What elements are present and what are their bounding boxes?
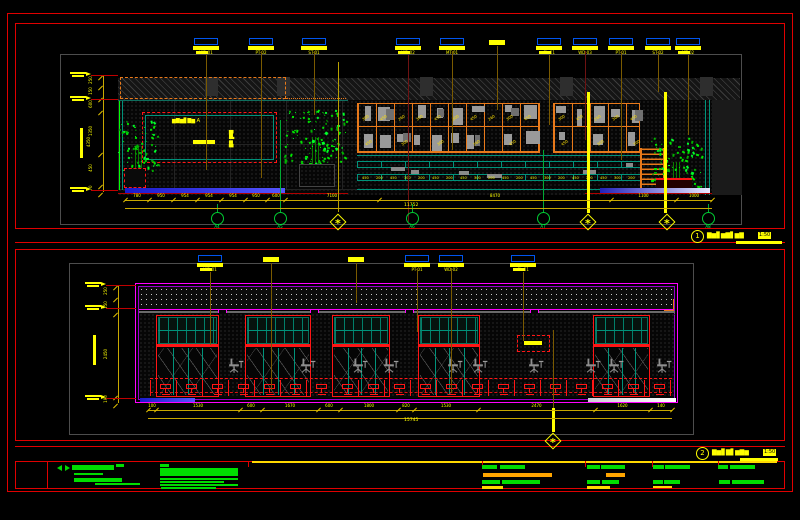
- elevation-flag-leader: [91, 75, 118, 76]
- grid-bubble: A5: [274, 212, 287, 225]
- plant-foliage: [322, 127, 324, 130]
- titleblock-bar: [587, 480, 600, 484]
- drawing2-number-bubble: 2: [696, 447, 709, 460]
- band-number: 450: [460, 177, 467, 181]
- section-leader-bar: [587, 92, 590, 213]
- dim1-total-line: [125, 208, 712, 209]
- window-sill: [419, 344, 479, 347]
- dim2-label: 1530: [434, 404, 458, 408]
- chair-base-red: [344, 394, 352, 395]
- elevation-flag-bar: [85, 282, 101, 284]
- wall-edge-line: [122, 100, 123, 190]
- band-number: 450: [502, 177, 509, 181]
- shelf-item: [472, 106, 484, 113]
- display-band: [357, 155, 640, 190]
- plant-foliage: [330, 128, 332, 131]
- titleblock-bar: [653, 465, 664, 469]
- dim2-label: 2470: [525, 404, 549, 408]
- dim1-label: 1000: [682, 194, 706, 198]
- plant-foliage: [316, 137, 318, 140]
- band-number: 450: [600, 177, 607, 181]
- material-tag: WD-01: [194, 38, 218, 45]
- plant-foliage: [128, 148, 130, 150]
- chair-base-red: [630, 394, 638, 395]
- section-marker-star: *: [585, 218, 591, 229]
- shelf-item: [526, 131, 540, 144]
- plant-foliage: [342, 113, 345, 116]
- material-tag: GL-01: [511, 255, 535, 262]
- plant-foliage: [668, 165, 670, 166]
- material-tag: MT-01: [440, 38, 464, 45]
- chair-base-red: [500, 394, 508, 395]
- table-leg: [384, 380, 385, 396]
- plant-foliage: [685, 155, 688, 159]
- elevation-flag-bar: [87, 308, 99, 310]
- elevation-flag-bar: [70, 96, 86, 98]
- annotation-text: ▆▇▆▊▇▆ A: [172, 119, 200, 124]
- dim2-label: 1670: [278, 404, 302, 408]
- table-leg: [618, 380, 619, 396]
- chair-base-red: [604, 394, 612, 395]
- seating-row: [150, 378, 672, 397]
- dim1-label: 950: [149, 194, 173, 198]
- elevation-flag-leader: [91, 99, 118, 100]
- table-leg: [228, 380, 229, 396]
- band-line: [357, 180, 640, 181]
- material-tag-underbar: [438, 263, 464, 267]
- section-leader-bar: [552, 408, 555, 432]
- band-item: [626, 163, 633, 167]
- annotation-bar: [193, 140, 215, 144]
- dim2-label: 600: [317, 404, 341, 408]
- band-line: [357, 155, 640, 156]
- table-leg: [358, 380, 359, 396]
- plant-foliage: [307, 111, 309, 113]
- band-number: 200: [558, 177, 565, 181]
- section-leader-bar: [664, 92, 667, 213]
- table-leg: [150, 380, 151, 396]
- titleblock-bar: [482, 465, 497, 469]
- ceiling-bracket: [664, 299, 674, 311]
- wall-edge-line: [119, 100, 120, 190]
- material-tag-underbar: [510, 263, 536, 267]
- dim1-label: 1100: [632, 194, 656, 198]
- plant-foliage: [143, 121, 144, 122]
- grid-bubble-label: A4: [214, 224, 219, 229]
- tag-leader-line: [271, 263, 272, 390]
- titleblock-topline: [252, 461, 777, 463]
- tag-leader-line: [621, 51, 622, 160]
- plant-foliage: [668, 157, 670, 159]
- ceiling-band: [139, 287, 674, 310]
- plant-foliage: [141, 161, 142, 162]
- material-tag-underbar2: [200, 268, 212, 271]
- chair-base-red: [188, 394, 196, 395]
- section-marker-star: *: [550, 437, 556, 448]
- band-item: [391, 167, 405, 171]
- titleblock-bar: [160, 464, 169, 467]
- ceiling-beam-block: [700, 77, 713, 96]
- band-item: [411, 170, 419, 174]
- material-tag-underbar: [572, 46, 598, 50]
- table-leg: [592, 380, 593, 396]
- plant-foliage: [325, 120, 327, 122]
- band-item: [459, 171, 469, 175]
- floor-strip: [140, 398, 195, 402]
- chair-base-red: [422, 394, 430, 395]
- material-tag-bar: [263, 257, 279, 262]
- cad-sheet: 1 ▇▆▊▆▇▋▆▇ 1:50 2 ▇▆▊▇▋▆▇▆ 1:50 ▆▇▆▊▇▆ A…: [0, 0, 800, 520]
- annotation-bar: [524, 341, 542, 345]
- drawing1-title: ▇▆▊▆▇▋▆▇: [707, 233, 744, 239]
- dim1-label: 954: [173, 194, 197, 198]
- chair-base-red: [396, 394, 404, 395]
- divider-line-b: [15, 446, 785, 447]
- plant-foliage: [656, 147, 657, 148]
- titleblock-bar: [502, 480, 540, 484]
- band-item: [583, 170, 596, 174]
- logo-mark: [65, 465, 70, 471]
- chair-base-red: [214, 394, 222, 395]
- leader-line: [543, 150, 544, 210]
- plant-foliage: [309, 153, 310, 154]
- plant-foliage: [688, 138, 690, 140]
- material-tag-bar: [489, 40, 505, 45]
- material-tag-underbar: [675, 46, 701, 50]
- table-leg: [566, 380, 567, 396]
- material-tag: GL-01: [537, 38, 561, 45]
- tag-leader-line: [497, 46, 498, 110]
- chair-base-red: [656, 394, 664, 395]
- elevation-flag-bar: [72, 75, 84, 77]
- office-chair: [447, 358, 463, 374]
- material-tag-underbar: [395, 46, 421, 50]
- dim2-label: 1530: [186, 404, 210, 408]
- dim2-label: 140: [649, 404, 673, 408]
- plant-foliage: [325, 111, 328, 113]
- elevation-flag-bar: [85, 395, 101, 397]
- drawing1-scale-chip: 1:50: [758, 232, 771, 239]
- plant-foliage: [314, 129, 315, 130]
- tag-leader-line: [549, 55, 550, 125]
- material-tag-underbar2: [513, 268, 525, 271]
- chair-base-red: [292, 394, 300, 395]
- drawing1-title-underline: [736, 241, 782, 244]
- office-chair: [300, 358, 316, 374]
- dim2-label: 600: [239, 404, 263, 408]
- band-number: 450: [362, 177, 369, 181]
- band-number: 200: [516, 177, 523, 181]
- window-transom-rail: [334, 330, 388, 331]
- dim1-line: [125, 200, 712, 201]
- plant-foliage: [145, 153, 148, 156]
- table-leg: [462, 380, 463, 396]
- plant-foliage: [120, 124, 122, 126]
- plant-foliage: [651, 141, 652, 143]
- plant-foliage: [150, 136, 154, 140]
- titleblock-bar: [160, 468, 238, 476]
- dim2-left-label: 190: [104, 391, 108, 407]
- dim1-label: 954: [197, 194, 221, 198]
- dim2-left-label: 2450: [104, 346, 108, 362]
- dim2-total: 15745: [404, 419, 418, 424]
- plant-foliage: [324, 115, 325, 117]
- elevation-flag-leader: [106, 398, 136, 399]
- plant-foliage: [320, 147, 321, 148]
- titleblock-bar: [483, 473, 552, 477]
- table-leg: [332, 380, 333, 396]
- dim1-label: 600: [264, 194, 288, 198]
- band-number: 450: [390, 177, 397, 181]
- window-transom-rail: [247, 330, 309, 331]
- plant-foliage: [144, 127, 145, 128]
- ceiling-beam-block: [560, 77, 573, 96]
- dim1-label: 780: [125, 194, 149, 198]
- plant-foliage: [678, 146, 681, 148]
- tag-leader-line: [356, 263, 357, 303]
- window-transom-rail: [595, 330, 648, 331]
- window-sill: [246, 344, 310, 347]
- plant-foliage: [310, 148, 312, 150]
- band-number: 200: [418, 177, 425, 181]
- tag-leader-line: [451, 268, 452, 393]
- plant-foliage: [138, 152, 141, 154]
- table-leg: [436, 380, 437, 396]
- office-chair: [352, 358, 368, 374]
- titleblock-bar: [95, 483, 140, 485]
- band-line: [357, 189, 640, 190]
- table-leg: [410, 380, 411, 396]
- plant-foliage: [286, 120, 287, 121]
- band-number: 300: [474, 177, 481, 181]
- office-chair: [228, 358, 244, 374]
- plant-foliage: [341, 147, 342, 149]
- elevation-flag-leader: [106, 285, 136, 286]
- table-leg: [540, 380, 541, 396]
- chair-base-red: [266, 394, 274, 395]
- ceiling-beam-block: [420, 77, 433, 96]
- material-tag: WD-02: [396, 38, 420, 45]
- plant-foliage: [325, 123, 327, 125]
- band-number: 450: [432, 177, 439, 181]
- material-tag: PT-02: [249, 38, 273, 45]
- titleblock-bar: [116, 464, 124, 467]
- planter-box: [124, 168, 146, 188]
- chair-base-red: [526, 394, 534, 395]
- tag-leader-line: [688, 55, 689, 135]
- tag-leader-line: [585, 51, 586, 140]
- plant-foliage: [679, 167, 681, 168]
- material-tag-underbar2: [678, 51, 690, 54]
- plant-foliage: [141, 142, 143, 145]
- drawing2-scale-chip: 1:50: [763, 449, 776, 456]
- grid-bubble-label: A7: [540, 224, 545, 229]
- titleblock-bar: [730, 465, 755, 469]
- plant-foliage: [122, 136, 123, 137]
- titleblock-bar: [161, 487, 216, 489]
- tag-leader-line: [658, 51, 659, 92]
- drawing1-number: 1: [695, 232, 699, 240]
- table-leg: [488, 380, 489, 396]
- plant-foliage: [654, 152, 655, 154]
- titleblock-bar: [482, 486, 503, 489]
- material-tag: PT-01: [405, 255, 429, 262]
- dim1-left-label: 450: [89, 160, 93, 176]
- divider-line-a: [15, 242, 785, 243]
- titleblock-bar: [587, 465, 600, 469]
- material-tag: ST-01: [302, 38, 326, 45]
- titleblock-bar: [74, 473, 103, 475]
- titleblock-bar: [719, 480, 730, 484]
- table-leg: [254, 380, 255, 396]
- elevation-flag-bar: [70, 187, 86, 189]
- dim2-label: 1800: [357, 404, 381, 408]
- tag-leader-line: [452, 51, 453, 150]
- grid-bubble-label: A6: [409, 224, 414, 229]
- material-tag-underbar: [439, 46, 465, 50]
- material-tag: WD-01: [198, 255, 222, 262]
- grid-bubble: A6: [406, 212, 419, 225]
- plant-foliage: [294, 112, 295, 113]
- titleblock-bar: [500, 465, 525, 469]
- plant-foliage: [691, 141, 694, 144]
- chair-base-red: [370, 394, 378, 395]
- plant-foliage: [343, 123, 345, 126]
- plant-foliage: [672, 153, 675, 156]
- elevation-flag-bar: [72, 99, 84, 101]
- table-leg: [644, 380, 645, 396]
- titleblock-bar: [664, 480, 680, 484]
- chair-base-red: [578, 394, 586, 395]
- titleblock-bar: [602, 480, 619, 484]
- titleblock-bar: [665, 465, 690, 469]
- material-tag: MT-02: [676, 38, 700, 45]
- plant-foliage: [122, 132, 124, 134]
- section-marker-star: *: [335, 218, 341, 229]
- table-leg: [306, 380, 307, 396]
- material-tag: ST-02: [646, 38, 670, 45]
- titleblock-bar: [482, 480, 500, 484]
- material-tag-underbar: [193, 46, 219, 50]
- window-transom-rail: [158, 330, 217, 331]
- tag-leader-line: [408, 55, 409, 222]
- chair-base-red: [318, 394, 326, 395]
- window-transom-rail: [420, 330, 478, 331]
- material-tag-underbar: [645, 46, 671, 50]
- plant-foliage: [293, 137, 294, 138]
- titleblock-divider: [248, 461, 249, 467]
- material-tag-underbar: [608, 46, 634, 50]
- chair-base-red: [240, 394, 248, 395]
- grid-bubble-label: A8: [705, 224, 710, 229]
- office-chair: [383, 358, 399, 374]
- plant-foliage: [305, 147, 307, 149]
- titleblock-bar: [74, 478, 122, 482]
- plant-foliage: [654, 168, 657, 170]
- plant-foliage: [666, 168, 669, 172]
- end-column: [712, 100, 742, 195]
- plant-foliage: [655, 143, 658, 146]
- elevation-flag-bar: [85, 305, 101, 307]
- titleblock-bar: [606, 473, 625, 477]
- plant-foliage: [700, 171, 702, 173]
- band-number: 200: [376, 177, 383, 181]
- band-number: 200: [628, 177, 635, 181]
- material-tag: PT-01: [609, 38, 633, 45]
- plant-foliage: [310, 130, 312, 133]
- dim1-label: 8470: [483, 194, 507, 198]
- floor-strip: [588, 398, 676, 402]
- plant-foliage: [311, 139, 315, 142]
- chair-base-red: [162, 394, 170, 395]
- dim2-left-line: [118, 285, 119, 403]
- dim1-label: 954: [221, 194, 245, 198]
- annotation-box-inner: [145, 115, 274, 160]
- titleblock-bar: [72, 465, 114, 470]
- office-chair: [528, 358, 544, 374]
- material-tag: WD-03: [573, 38, 597, 45]
- material-tag: WD-02: [439, 255, 463, 262]
- elevation-flag-leader: [91, 190, 118, 191]
- wall-end-line: [705, 100, 706, 195]
- office-chair: [472, 358, 488, 374]
- table-leg: [202, 380, 203, 396]
- elevation-flag-bar: [72, 190, 84, 192]
- table-leg: [280, 380, 281, 396]
- tag-leader-line: [314, 51, 315, 115]
- shelf-item: [414, 135, 419, 145]
- plant-foliage: [127, 123, 129, 125]
- shelf-item: [386, 109, 395, 119]
- seating-row-dash2: [150, 392, 672, 393]
- dim2-label: 1620: [611, 404, 635, 408]
- table-leg: [514, 380, 515, 396]
- tag-leader-line: [210, 272, 211, 345]
- plant-foliage: [150, 120, 153, 123]
- band-number: 300: [614, 177, 621, 181]
- leader-line: [553, 330, 554, 408]
- table-leg: [670, 380, 671, 396]
- window-sill: [594, 344, 649, 347]
- titleblock-bar: [587, 486, 610, 489]
- elevation-flag-bar: [87, 398, 99, 400]
- material-tag-underbar: [197, 263, 223, 267]
- tag-leader-line: [261, 51, 262, 178]
- plant-foliage: [701, 186, 702, 188]
- material-tag-bar: [348, 257, 364, 262]
- plant-foliage: [321, 112, 323, 114]
- drawing1-number-bubble: 1: [691, 230, 704, 243]
- plant-foliage: [135, 136, 138, 138]
- plant-foliage: [330, 155, 332, 158]
- titleblock-bar: [160, 481, 224, 483]
- office-chair: [656, 358, 672, 374]
- office-chair: [585, 358, 601, 374]
- plant-foliage: [659, 150, 661, 152]
- elevation-flag-bar: [70, 72, 86, 74]
- annotation-vtext: ▇▆▋▆▇: [228, 130, 233, 147]
- plant-foliage: [330, 145, 332, 147]
- titleblock-bar: [653, 486, 672, 488]
- titleblock-bar: [732, 480, 764, 484]
- plant-foliage: [128, 156, 131, 159]
- grid-bubble-label: A5: [277, 224, 282, 229]
- material-tag-underbar: [248, 46, 274, 50]
- planter-box: [299, 164, 335, 187]
- band-number: 200: [446, 177, 453, 181]
- elevation-flag-leader: [106, 308, 136, 309]
- band-number: 300: [544, 177, 551, 181]
